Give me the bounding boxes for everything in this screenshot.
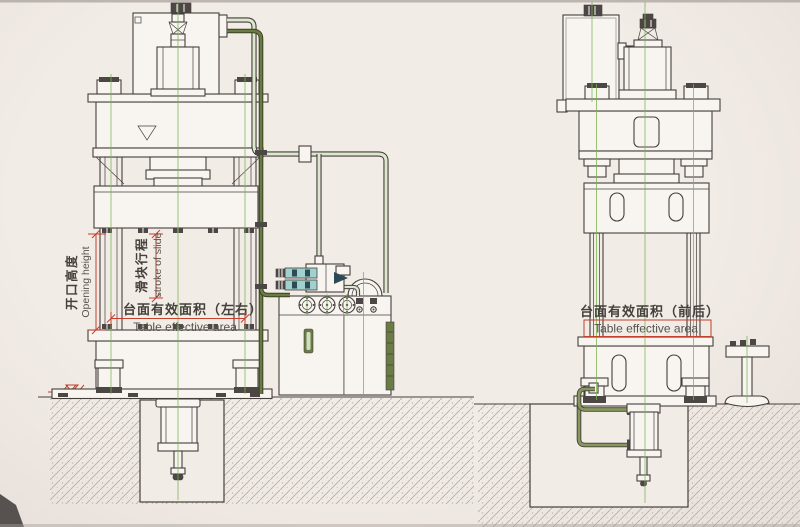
slide-side bbox=[584, 183, 709, 233]
pipe-flange-housing bbox=[219, 15, 227, 37]
hydraulic-power-unit bbox=[279, 279, 391, 395]
nut-top-rear bbox=[684, 83, 708, 99]
opening-height-label-zh: 开口高度 bbox=[64, 254, 79, 310]
opening-height-label-en: Opening height bbox=[80, 246, 92, 317]
dimension-annotations: 开口高度 Opening height 滑块行程 stroke of slide… bbox=[64, 230, 720, 337]
press-installation-drawing: 开口高度 Opening height 滑块行程 stroke of slide… bbox=[0, 0, 800, 527]
oil-level-gauge bbox=[304, 329, 313, 353]
pedestal-panel bbox=[726, 346, 769, 357]
nut-bottom-rear bbox=[682, 378, 709, 403]
dim-table-area-fb: 台面有效面积（前后） Table effective area bbox=[580, 304, 720, 337]
table-area-fb-label-zh: 台面有效面积（前后） bbox=[580, 304, 720, 319]
engineering-drawing: 开口高度 Opening height 滑块行程 stroke of slide… bbox=[0, 0, 800, 527]
column-nut-bottom-left bbox=[95, 360, 123, 393]
pedestal-button-3 bbox=[750, 339, 756, 345]
nut-under-crown-rear bbox=[681, 159, 707, 177]
ram-adapter-side bbox=[619, 159, 674, 176]
table-area-fb-label-en: Table effective area bbox=[594, 322, 698, 336]
cabinet-side-duct bbox=[386, 322, 394, 390]
dim-table-area-lr: 台面有效面积（左右） Table effective area bbox=[107, 302, 263, 334]
ground-hatch-left bbox=[50, 398, 474, 504]
table-area-lr-label-zh: 台面有效面积（左右） bbox=[123, 302, 263, 317]
nut-top-front bbox=[585, 83, 609, 99]
column-nut-bottom-right bbox=[233, 360, 261, 393]
pipe-flange-branch bbox=[299, 146, 311, 162]
valve-top-tab bbox=[336, 266, 350, 275]
table-area-lr-label-en: Table effective area bbox=[133, 320, 237, 334]
solenoid-upper bbox=[285, 268, 317, 278]
table-plate-side bbox=[578, 337, 713, 346]
column-nut-top-left bbox=[97, 77, 121, 94]
main-cylinder-side bbox=[619, 14, 676, 100]
stroke-label-en: stroke of slide bbox=[152, 232, 164, 297]
dim-stroke-of-slide: 滑块行程 stroke of slide bbox=[134, 230, 164, 302]
stroke-label-zh: 滑块行程 bbox=[134, 237, 149, 293]
ram-flange-side bbox=[614, 174, 679, 183]
crown-top-plate-side bbox=[566, 99, 720, 111]
crown-bottom-plate-side bbox=[579, 151, 712, 159]
pedestal-button-2 bbox=[740, 340, 746, 346]
filler-cap bbox=[171, 3, 191, 13]
press-front-view bbox=[52, 3, 272, 399]
nut-under-crown-front bbox=[584, 159, 610, 177]
valve-manifold bbox=[276, 256, 358, 296]
photo-edge-top bbox=[0, 0, 800, 3]
foundation-pit-right bbox=[530, 404, 688, 507]
solenoid-connectors bbox=[276, 269, 285, 289]
solenoid-lower bbox=[285, 280, 317, 290]
cylinder-body bbox=[161, 407, 197, 445]
photo-corner-bottom-left bbox=[0, 494, 24, 527]
